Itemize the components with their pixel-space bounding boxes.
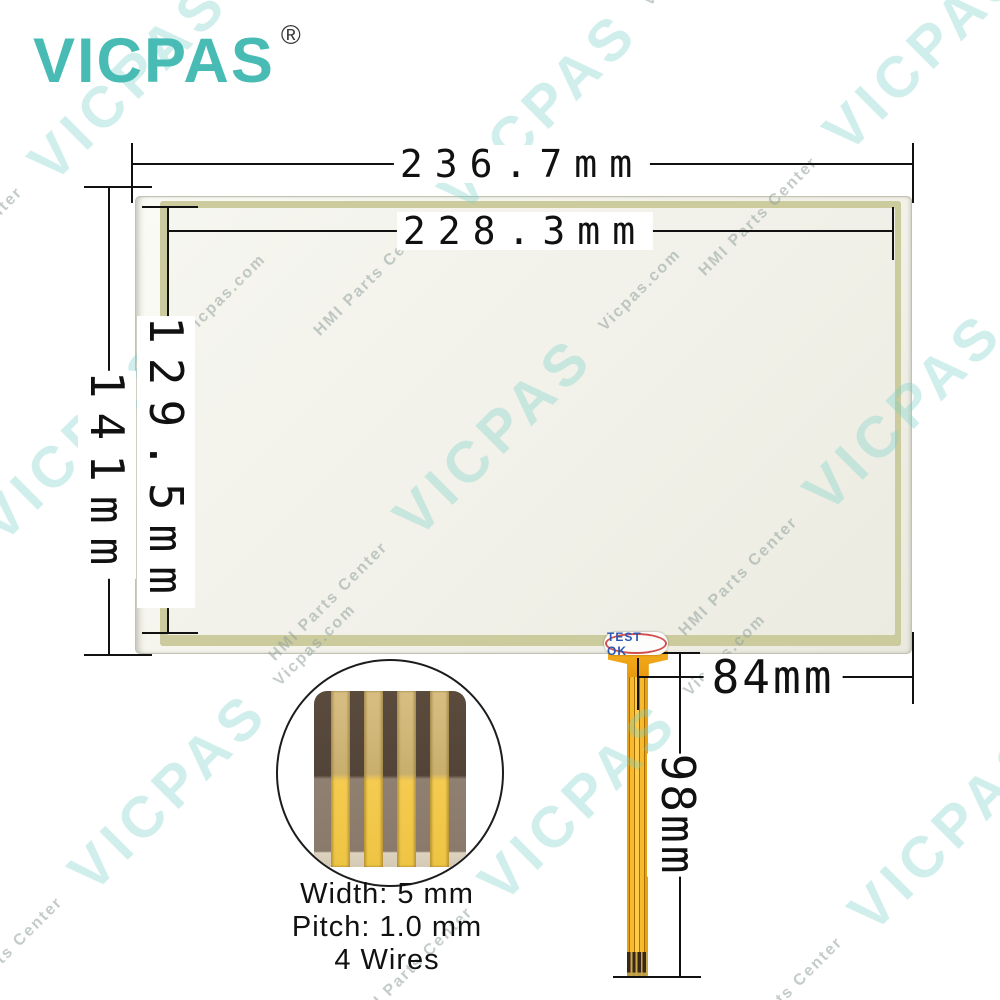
test-ok-sticker: TEST OK	[604, 632, 668, 655]
brand-logo-text: VICPAS	[33, 26, 275, 96]
watermark-primary: VICPAS	[810, 0, 1000, 165]
test-ok-label: TEST OK	[607, 630, 665, 658]
watermark-secondary: HMI Parts Center	[0, 893, 67, 1000]
dim-tick-cable-offset-right	[912, 632, 914, 704]
watermark-primary: VICPAS	[425, 0, 652, 225]
test-ok-ring: TEST OK	[605, 633, 667, 654]
touch-panel-glass	[135, 196, 912, 654]
watermark-primary: VICPAS	[835, 718, 1000, 945]
dim-label-cable-length: 98mm	[647, 754, 709, 877]
dim-tick-inner-height-bottom	[142, 632, 198, 634]
watermark-secondary: HMI Parts Center	[720, 933, 847, 1000]
connector-photo	[314, 691, 466, 867]
brand-logo: VICPAS®	[33, 22, 303, 93]
dim-label-inner-height: 129.5mm	[137, 316, 195, 608]
dim-tick-outer-height-top	[84, 186, 152, 188]
connector-specs: Width: 5 mm Pitch: 1.0 mm 4 Wires	[262, 878, 512, 977]
dim-tick-cable-offset-left	[637, 658, 639, 710]
dim-tick-cable-length-top	[660, 652, 700, 654]
flex-cable-contact-fingers	[627, 952, 648, 978]
dim-tick-inner-height-top	[142, 206, 198, 208]
connector-wire-3	[397, 691, 416, 867]
dim-label-inner-width: 228.3mm	[397, 212, 653, 250]
dim-tick-outer-width-left	[131, 143, 133, 203]
dim-tick-outer-width-right	[912, 143, 914, 203]
connector-zoom-inset	[276, 659, 504, 887]
registered-trademark-icon: ®	[281, 20, 303, 50]
connector-wire-4	[430, 691, 449, 867]
spec-width: Width: 5 mm	[262, 878, 512, 911]
watermark-secondary: HMI Parts Center	[0, 183, 27, 310]
dim-label-cable-offset: 84mm	[704, 654, 843, 700]
spec-pitch: Pitch: 1.0 mm	[262, 911, 512, 944]
dim-label-outer-height: 141mm	[78, 371, 136, 579]
watermark-primary: VICPAS	[55, 678, 282, 905]
touch-panel-active-area	[167, 208, 895, 635]
dim-label-outer-width: 236.7mm	[394, 145, 650, 183]
dim-tick-inner-width-right	[892, 207, 894, 260]
watermark-tertiary: Vicpas.com	[640, 0, 730, 10]
connector-wire-2	[364, 691, 383, 867]
dim-tick-cable-length-bottom	[613, 976, 701, 978]
connector-wire-1	[331, 691, 350, 867]
spec-wires: 4 Wires	[262, 944, 512, 977]
dim-tick-outer-height-bottom	[84, 654, 152, 656]
